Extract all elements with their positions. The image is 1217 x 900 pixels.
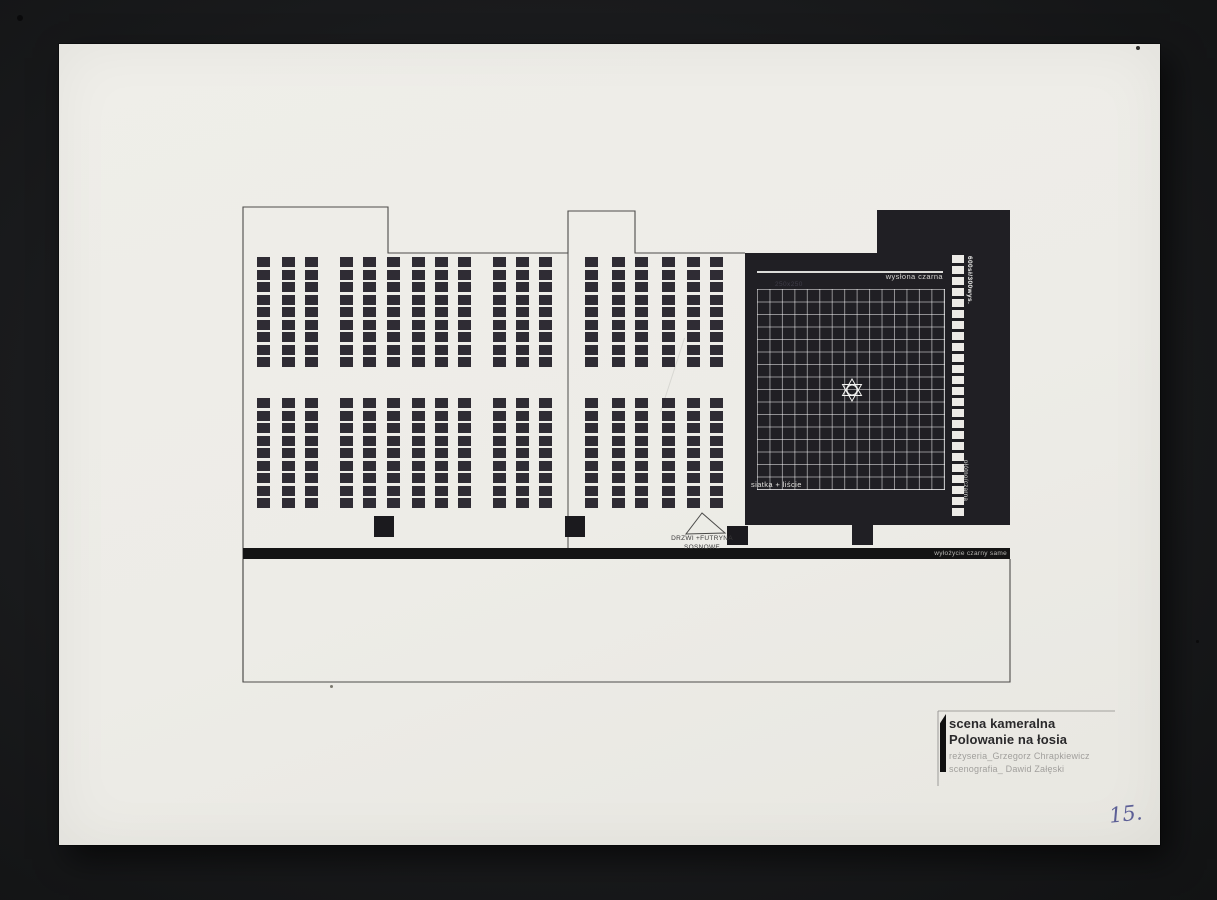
seat-left (516, 257, 529, 267)
seat-middle (585, 498, 598, 508)
seat-middle (710, 257, 723, 267)
seat-left (412, 320, 425, 330)
scanned-sheet: wysłona czarna 250x250 600sł/300wys. płó… (59, 44, 1160, 845)
seat-left (435, 411, 448, 421)
seat-left (458, 345, 471, 355)
seat-left (282, 345, 295, 355)
seat-middle (635, 282, 648, 292)
seat-left (305, 257, 318, 267)
seat-middle (662, 411, 675, 421)
seat-middle (687, 282, 700, 292)
seat-middle (585, 257, 598, 267)
seat-left (282, 357, 295, 367)
seat-middle (710, 295, 723, 305)
seat-left (435, 282, 448, 292)
seat-middle (710, 436, 723, 446)
dust-speck (17, 15, 23, 21)
seat-left (257, 411, 270, 421)
seat-left (516, 436, 529, 446)
seat-middle (710, 398, 723, 408)
seat-middle (687, 307, 700, 317)
seat-middle (662, 498, 675, 508)
seat-middle (687, 295, 700, 305)
seat-left (539, 461, 552, 471)
seat-left (387, 448, 400, 458)
seat-left (412, 307, 425, 317)
seat-left (257, 357, 270, 367)
seat-middle (662, 270, 675, 280)
seat-left (458, 257, 471, 267)
seat-left (305, 295, 318, 305)
seat-middle (612, 282, 625, 292)
seat-left (493, 436, 506, 446)
seat-left (363, 270, 376, 280)
seat-left (539, 282, 552, 292)
seat-middle (612, 320, 625, 330)
seat-middle (662, 295, 675, 305)
seat-middle (585, 357, 598, 367)
seat-left (435, 307, 448, 317)
seat-middle (585, 295, 598, 305)
seat-left (539, 357, 552, 367)
seat-left (435, 398, 448, 408)
seat-middle (635, 461, 648, 471)
seat-left (539, 307, 552, 317)
seat-left (516, 295, 529, 305)
seat-left (387, 498, 400, 508)
seat-middle (662, 282, 675, 292)
seat-left (493, 448, 506, 458)
seat-left (282, 498, 295, 508)
seat-left (493, 357, 506, 367)
seat-left (516, 423, 529, 433)
seat-left (363, 486, 376, 496)
seat-left (435, 498, 448, 508)
seat-left (282, 332, 295, 342)
seat-left (340, 473, 353, 483)
seat-middle (662, 257, 675, 267)
seat-left (435, 486, 448, 496)
title-block-bar (940, 714, 946, 772)
seat-middle (687, 411, 700, 421)
seat-middle (612, 448, 625, 458)
seat-middle (662, 345, 675, 355)
seat-left (340, 270, 353, 280)
seat-left (282, 398, 295, 408)
seat-left (340, 307, 353, 317)
seat-middle (635, 473, 648, 483)
seat-left (516, 398, 529, 408)
seat-left (458, 398, 471, 408)
seat-left (305, 448, 318, 458)
seat-middle (585, 345, 598, 355)
seat-left (539, 436, 552, 446)
seat-middle (710, 423, 723, 433)
seat-middle (635, 332, 648, 342)
seat-left (458, 282, 471, 292)
seat-left (493, 295, 506, 305)
seat-left (257, 436, 270, 446)
seat-left (363, 345, 376, 355)
seat-middle (710, 270, 723, 280)
seat-middle (687, 498, 700, 508)
seat-left (435, 473, 448, 483)
seat-left (458, 423, 471, 433)
seat-left (387, 345, 400, 355)
seat-left (387, 357, 400, 367)
seat-left (412, 282, 425, 292)
seat-left (257, 345, 270, 355)
seat-left (305, 357, 318, 367)
seat-left (340, 398, 353, 408)
seat-left (412, 411, 425, 421)
seat-left (363, 320, 376, 330)
seat-left (435, 423, 448, 433)
seat-left (435, 295, 448, 305)
seat-middle (710, 498, 723, 508)
seat-left (516, 270, 529, 280)
seat-middle (612, 398, 625, 408)
seat-middle (612, 357, 625, 367)
seat-middle (635, 486, 648, 496)
seat-middle (635, 357, 648, 367)
seat-middle (585, 282, 598, 292)
seat-left (412, 332, 425, 342)
seat-middle (585, 332, 598, 342)
seat-left (435, 332, 448, 342)
seat-middle (585, 411, 598, 421)
seat-left (412, 295, 425, 305)
seat-left (412, 270, 425, 280)
seat-middle (662, 486, 675, 496)
seat-left (257, 320, 270, 330)
seat-left (493, 320, 506, 330)
seat-middle (585, 448, 598, 458)
seat-middle (635, 398, 648, 408)
seat-left (305, 307, 318, 317)
seat-left (435, 448, 448, 458)
seat-left (539, 270, 552, 280)
director-credit: reżyseria_Grzegorz Chrapkiewicz (949, 751, 1090, 761)
seat-left (257, 295, 270, 305)
seat-left (516, 411, 529, 421)
seat-middle (612, 486, 625, 496)
seat-left (257, 498, 270, 508)
seat-middle (612, 461, 625, 471)
seat-middle (585, 320, 598, 330)
seat-left (305, 486, 318, 496)
seat-left (305, 270, 318, 280)
seat-left (305, 398, 318, 408)
seat-left (516, 357, 529, 367)
seat-left (305, 473, 318, 483)
seat-left (363, 461, 376, 471)
paper-speck (1136, 46, 1140, 50)
seat-middle (710, 332, 723, 342)
seat-middle (687, 448, 700, 458)
seat-middle (585, 461, 598, 471)
seat-left (516, 345, 529, 355)
seat-left (305, 320, 318, 330)
seat-left (387, 257, 400, 267)
seat-left (539, 423, 552, 433)
seat-middle (687, 257, 700, 267)
seat-left (282, 257, 295, 267)
seat-left (363, 332, 376, 342)
seat-left (340, 436, 353, 446)
seat-middle (612, 295, 625, 305)
seat-middle (635, 448, 648, 458)
seat-left (493, 411, 506, 421)
seat-left (363, 357, 376, 367)
seat-middle (612, 257, 625, 267)
seat-left (435, 436, 448, 446)
seat-left (363, 282, 376, 292)
seat-left (493, 257, 506, 267)
seat-middle (710, 307, 723, 317)
seat-middle (635, 411, 648, 421)
seat-middle (687, 423, 700, 433)
seat-middle (612, 411, 625, 421)
seat-left (305, 423, 318, 433)
seat-left (257, 486, 270, 496)
seat-left (458, 473, 471, 483)
seat-left (387, 332, 400, 342)
seat-left (435, 461, 448, 471)
seat-left (282, 320, 295, 330)
seat-left (435, 320, 448, 330)
seat-left (493, 461, 506, 471)
seat-left (363, 295, 376, 305)
seat-left (282, 270, 295, 280)
seat-left (282, 486, 295, 496)
seat-middle (585, 307, 598, 317)
seat-middle (612, 345, 625, 355)
seat-left (340, 448, 353, 458)
seat-middle (687, 270, 700, 280)
seat-middle (585, 436, 598, 446)
seat-left (387, 270, 400, 280)
seat-left (412, 357, 425, 367)
seat-left (282, 411, 295, 421)
seat-middle (585, 423, 598, 433)
seat-middle (585, 486, 598, 496)
seat-middle (710, 473, 723, 483)
seat-left (458, 357, 471, 367)
seat-left (539, 332, 552, 342)
seat-middle (687, 398, 700, 408)
seat-left (363, 448, 376, 458)
seat-middle (662, 307, 675, 317)
seat-left (539, 448, 552, 458)
seat-middle (612, 473, 625, 483)
seat-left (387, 398, 400, 408)
seat-left (458, 448, 471, 458)
seat-left (458, 320, 471, 330)
seat-middle (687, 357, 700, 367)
seat-left (257, 448, 270, 458)
seat-left (257, 473, 270, 483)
seat-left (305, 436, 318, 446)
seat-left (493, 345, 506, 355)
production-title: Polowanie na łosia (949, 732, 1067, 747)
seat-left (340, 282, 353, 292)
seat-middle (662, 423, 675, 433)
seat-left (340, 498, 353, 508)
seat-left (435, 345, 448, 355)
seat-left (493, 486, 506, 496)
seat-middle (687, 486, 700, 496)
seat-middle (687, 461, 700, 471)
seat-left (493, 423, 506, 433)
seat-left (516, 307, 529, 317)
seat-left (458, 411, 471, 421)
seat-left (282, 473, 295, 483)
seat-left (539, 498, 552, 508)
seat-left (305, 345, 318, 355)
seat-left (539, 473, 552, 483)
seat-middle (687, 473, 700, 483)
seat-left (363, 423, 376, 433)
seat-left (282, 423, 295, 433)
seat-left (435, 257, 448, 267)
seat-left (387, 461, 400, 471)
seat-left (412, 345, 425, 355)
seat-left (516, 498, 529, 508)
scenographer-credit: scenografia_ Dawid Załęski (949, 764, 1064, 774)
seat-left (305, 498, 318, 508)
seat-left (458, 270, 471, 280)
seat-left (493, 332, 506, 342)
seat-left (282, 461, 295, 471)
seat-middle (585, 398, 598, 408)
seat-middle (585, 473, 598, 483)
seat-left (340, 461, 353, 471)
seat-left (412, 257, 425, 267)
seat-left (539, 320, 552, 330)
seat-left (387, 320, 400, 330)
seat-left (458, 498, 471, 508)
seat-left (387, 307, 400, 317)
seat-left (412, 473, 425, 483)
seat-left (412, 448, 425, 458)
seat-middle (635, 257, 648, 267)
seat-middle (585, 270, 598, 280)
seat-left (387, 423, 400, 433)
seat-middle (687, 332, 700, 342)
seat-left (363, 398, 376, 408)
seat-left (340, 257, 353, 267)
seat-left (458, 436, 471, 446)
seat-left (412, 498, 425, 508)
seat-left (516, 486, 529, 496)
seat-middle (635, 320, 648, 330)
seat-middle (662, 473, 675, 483)
seat-left (412, 423, 425, 433)
seat-middle (662, 436, 675, 446)
seat-middle (710, 461, 723, 471)
seat-middle (635, 436, 648, 446)
seat-left (412, 398, 425, 408)
seat-left (340, 332, 353, 342)
seat-left (340, 423, 353, 433)
seat-left (282, 436, 295, 446)
seat-middle (710, 282, 723, 292)
seat-left (257, 423, 270, 433)
seat-middle (662, 320, 675, 330)
page-number-handwritten: 15. (1108, 800, 1144, 827)
seat-left (387, 473, 400, 483)
seat-left (516, 473, 529, 483)
seat-left (435, 357, 448, 367)
seat-left (458, 461, 471, 471)
seat-left (458, 332, 471, 342)
seat-middle (612, 307, 625, 317)
seat-left (435, 270, 448, 280)
dust-speck (1196, 640, 1199, 643)
seat-middle (710, 345, 723, 355)
seat-left (282, 282, 295, 292)
seat-left (516, 282, 529, 292)
seat-left (539, 486, 552, 496)
seat-left (458, 307, 471, 317)
seat-middle (612, 270, 625, 280)
seat-left (305, 411, 318, 421)
seat-left (458, 295, 471, 305)
seat-middle (635, 270, 648, 280)
seat-middle (612, 332, 625, 342)
seat-left (282, 307, 295, 317)
seat-left (340, 357, 353, 367)
seat-left (340, 411, 353, 421)
seat-left (387, 486, 400, 496)
seat-left (257, 461, 270, 471)
seat-middle (662, 332, 675, 342)
seat-left (516, 448, 529, 458)
seat-left (363, 307, 376, 317)
seat-left (539, 295, 552, 305)
seat-middle (687, 436, 700, 446)
seat-left (305, 282, 318, 292)
seat-middle (710, 448, 723, 458)
seat-middle (662, 357, 675, 367)
seat-left (493, 307, 506, 317)
seat-left (493, 282, 506, 292)
seat-left (340, 320, 353, 330)
seat-middle (687, 345, 700, 355)
seat-left (363, 436, 376, 446)
seat-left (257, 398, 270, 408)
seat-left (305, 332, 318, 342)
seat-middle (710, 357, 723, 367)
paper-speck (330, 685, 333, 688)
seat-middle (635, 307, 648, 317)
seat-left (340, 486, 353, 496)
seat-left (493, 473, 506, 483)
seat-left (387, 436, 400, 446)
seat-left (305, 461, 318, 471)
seat-middle (662, 448, 675, 458)
seat-middle (635, 345, 648, 355)
seat-left (257, 332, 270, 342)
seat-left (340, 345, 353, 355)
seat-middle (635, 498, 648, 508)
seat-middle (635, 295, 648, 305)
seat-left (516, 320, 529, 330)
seat-left (363, 473, 376, 483)
seat-middle (612, 498, 625, 508)
seat-left (340, 295, 353, 305)
